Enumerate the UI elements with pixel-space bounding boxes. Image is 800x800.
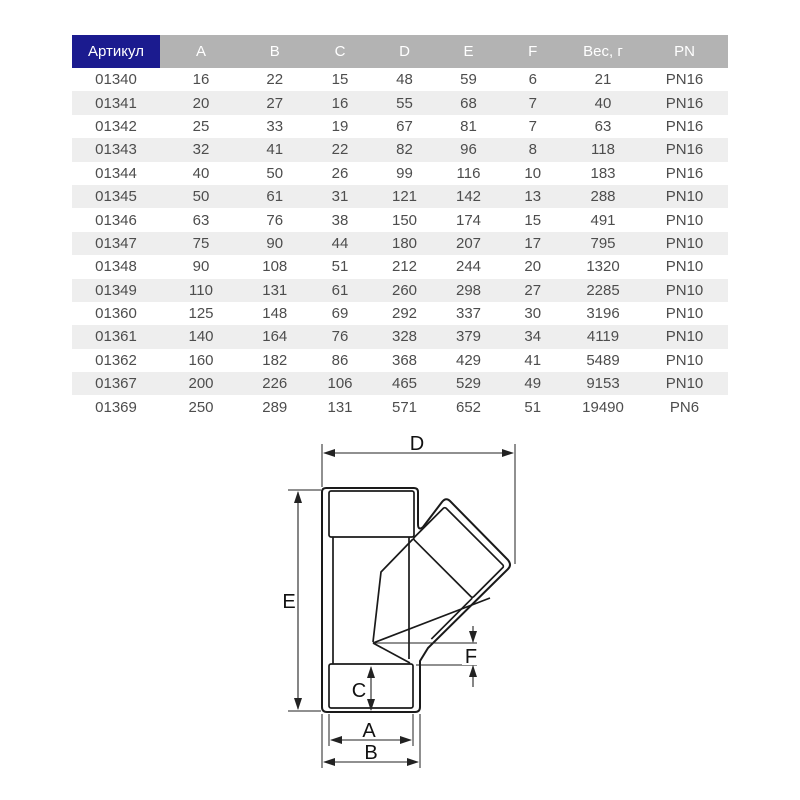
dim-label-C: C	[352, 680, 366, 702]
dim-label-D: D	[410, 433, 424, 455]
fitting-diagram: D E C A B F	[0, 0, 800, 800]
dim-label-A: A	[362, 720, 376, 742]
dim-label-E: E	[282, 591, 295, 613]
fitting-body-outline	[322, 488, 510, 712]
dim-label-B: B	[364, 742, 377, 764]
dim-label-F: F	[465, 646, 477, 668]
datasheet-page: АртикулABCDEFВес, гPN 013401622154859621…	[0, 0, 800, 800]
